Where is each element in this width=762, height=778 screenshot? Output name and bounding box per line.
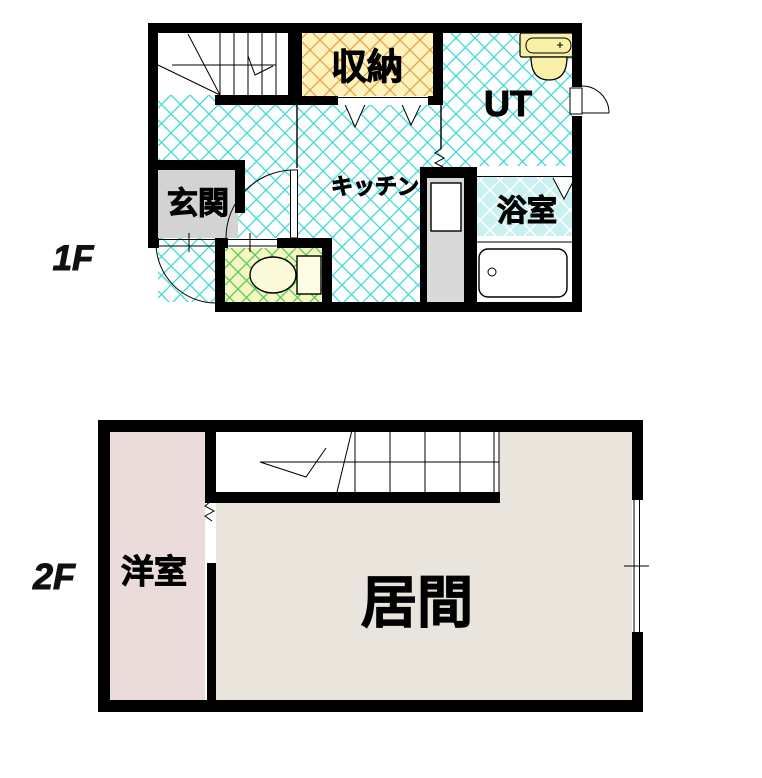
toilet-icon bbox=[250, 256, 321, 294]
storage-label: 収納 bbox=[331, 46, 403, 87]
ut-door-arc bbox=[582, 86, 609, 113]
entrance-label: 玄関 bbox=[167, 186, 229, 221]
kitchen-sink-icon bbox=[431, 183, 461, 231]
floor-1f-label: 1F bbox=[53, 239, 95, 278]
floor-2f-plan: 洋室 居間 2F bbox=[32, 420, 649, 712]
bathtub-drain bbox=[488, 268, 496, 276]
bathroom-label: 浴室 bbox=[497, 194, 557, 228]
stairs-1f-area bbox=[158, 33, 288, 95]
kitchen-label: キッチン bbox=[331, 174, 419, 199]
western-room-label: 洋室 bbox=[121, 553, 187, 590]
ut-exterior-door bbox=[582, 86, 609, 113]
bathroom-top-opening bbox=[473, 166, 572, 177]
living-room-label: 居間 bbox=[361, 571, 473, 634]
floor-1f-plan: 収納 UT キッチン 玄関 浴室 1F bbox=[53, 23, 609, 312]
floor-plan-canvas: 収納 UT キッチン 玄関 浴室 1F bbox=[0, 0, 762, 778]
western-room-opening bbox=[205, 500, 216, 563]
ut-label: UT bbox=[484, 83, 532, 124]
kitchen-door-leaf bbox=[291, 170, 298, 238]
floor-2f-label: 2F bbox=[32, 556, 76, 597]
